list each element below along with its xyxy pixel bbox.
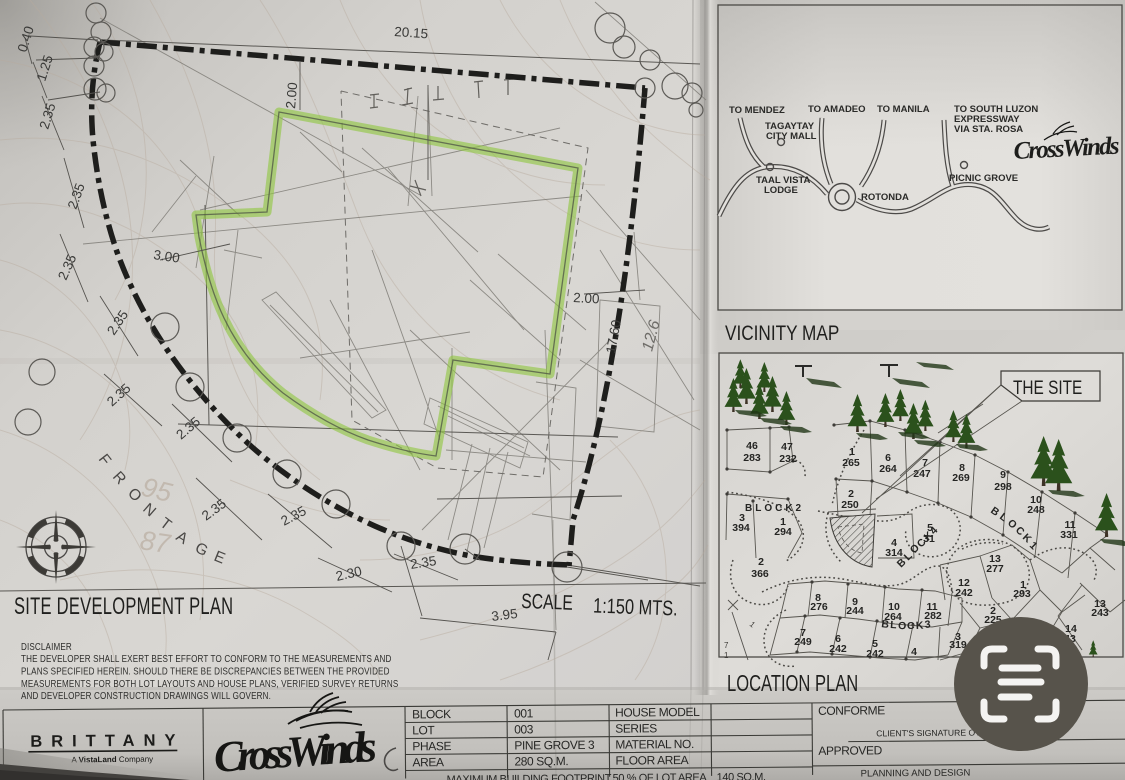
svg-text:003: 003: [514, 722, 534, 736]
svg-text:PHASE: PHASE: [412, 739, 451, 753]
svg-text:87: 87: [138, 525, 173, 559]
svg-text:TO MENDEZ: TO MENDEZ: [729, 105, 785, 116]
svg-text:3.95: 3.95: [491, 606, 519, 624]
svg-text:FLOOR AREA: FLOOR AREA: [615, 753, 688, 768]
svg-text:AREA: AREA: [412, 755, 444, 769]
svg-text:232: 232: [779, 453, 797, 465]
svg-text:46: 46: [746, 440, 758, 452]
svg-text:CrossWinds: CrossWinds: [1013, 132, 1120, 165]
svg-text:247: 247: [913, 468, 931, 480]
svg-text:MEASUREMENTS FOR BOTH LOT LAYO: MEASUREMENTS FOR BOTH LOT LAYOUTS AND HO…: [21, 678, 398, 689]
svg-text:394: 394: [732, 522, 750, 534]
svg-text:283: 283: [743, 452, 761, 464]
svg-text:O: O: [898, 620, 907, 632]
svg-text:LOCATION PLAN: LOCATION PLAN: [727, 671, 858, 696]
svg-text:DISCLAIMER: DISCLAIMER: [21, 641, 72, 652]
svg-text:250: 250: [841, 499, 859, 511]
svg-text:SERIES: SERIES: [615, 721, 657, 735]
svg-text:3: 3: [924, 619, 931, 631]
svg-text:277: 277: [986, 563, 1004, 575]
svg-text:244: 244: [846, 605, 864, 617]
svg-text:BLOCK2: BLOCK2: [745, 503, 804, 514]
svg-text:PINE GROVE 3: PINE GROVE 3: [514, 738, 595, 753]
svg-text:294: 294: [774, 526, 792, 538]
svg-text:366: 366: [751, 568, 769, 580]
svg-text:SITE DEVELOPMENT PLAN: SITE DEVELOPMENT PLAN: [14, 593, 233, 620]
svg-text:9: 9: [1000, 469, 1006, 481]
svg-text:269: 269: [952, 472, 970, 484]
svg-text:50 % OF LOT AREA: 50 % OF LOT AREA: [613, 772, 708, 780]
svg-text:242: 242: [866, 648, 884, 660]
svg-text:HOUSE MODEL: HOUSE MODEL: [615, 705, 700, 720]
svg-text:331: 331: [1060, 529, 1078, 541]
svg-text:SCALE: SCALE: [521, 589, 573, 615]
svg-text:PLANS SPECIFIED HEREIN. SHOULD: PLANS SPECIFIED HEREIN. SHOULD THERE BE …: [21, 666, 390, 677]
svg-text:BRITTANY: BRITTANY: [30, 731, 184, 750]
svg-text:TO MANILA: TO MANILA: [877, 104, 930, 115]
svg-text:CrossWinds: CrossWinds: [212, 722, 378, 780]
svg-text:TO AMADEO: TO AMADEO: [808, 104, 866, 115]
svg-text:LODGE: LODGE: [764, 185, 798, 196]
svg-text:CITY MALL: CITY MALL: [766, 131, 817, 142]
svg-text:VICINITY MAP: VICINITY MAP: [725, 321, 839, 345]
svg-text:2.00: 2.00: [573, 290, 600, 306]
svg-text:K: K: [916, 620, 925, 632]
svg-text:140 SQ.M.: 140 SQ.M.: [717, 771, 766, 780]
svg-text:ROTONDA: ROTONDA: [861, 192, 909, 203]
svg-text:1:150 MTS.: 1:150 MTS.: [593, 594, 678, 620]
svg-text:2: 2: [758, 556, 764, 568]
svg-text:249: 249: [794, 636, 812, 648]
svg-text:THE SITE: THE SITE: [1013, 376, 1082, 398]
svg-text:MATERIAL NO.: MATERIAL NO.: [615, 737, 694, 752]
svg-text:2.00: 2.00: [283, 82, 300, 109]
svg-text:298: 298: [994, 481, 1012, 493]
svg-text:PLANNING AND DESIGN: PLANNING AND DESIGN: [861, 768, 971, 780]
svg-text:242: 242: [955, 587, 973, 599]
svg-text:PICNIC GROVE: PICNIC GROVE: [949, 173, 1018, 184]
svg-text:4: 4: [911, 646, 917, 658]
svg-text:47: 47: [781, 441, 793, 453]
svg-text:264: 264: [879, 463, 897, 475]
svg-text:20.15: 20.15: [394, 24, 429, 41]
svg-text:280 SQ.M.: 280 SQ.M.: [514, 754, 568, 768]
svg-text:BLOCK: BLOCK: [412, 707, 451, 721]
svg-text:7: 7: [724, 641, 729, 650]
svg-text:CONFORME: CONFORME: [818, 703, 885, 718]
svg-text:C: C: [907, 620, 915, 632]
svg-text:243: 243: [1091, 607, 1109, 619]
svg-text:MAXIMUM BUILDING FOOTPRINT: MAXIMUM BUILDING FOOTPRINT: [447, 773, 612, 780]
svg-text:THE DEVELOPER SHALL EXERT BEST: THE DEVELOPER SHALL EXERT BEST EFFORT TO…: [21, 653, 392, 664]
svg-text:265: 265: [842, 457, 860, 469]
svg-text:LOT: LOT: [412, 723, 435, 737]
svg-text:001: 001: [514, 706, 534, 720]
svg-text:AND DEVELOPER CONSTRUCTION DRA: AND DEVELOPER CONSTRUCTION DRAWINGS WILL…: [21, 690, 271, 701]
svg-text:276: 276: [810, 601, 828, 613]
svg-text:APPROVED: APPROVED: [818, 743, 882, 758]
svg-text:1: 1: [724, 651, 729, 660]
svg-text:VIA STA. ROSA: VIA STA. ROSA: [954, 124, 1023, 135]
svg-text:248: 248: [1027, 504, 1045, 516]
svg-text:242: 242: [829, 643, 847, 655]
svg-text:293: 293: [1013, 588, 1031, 600]
